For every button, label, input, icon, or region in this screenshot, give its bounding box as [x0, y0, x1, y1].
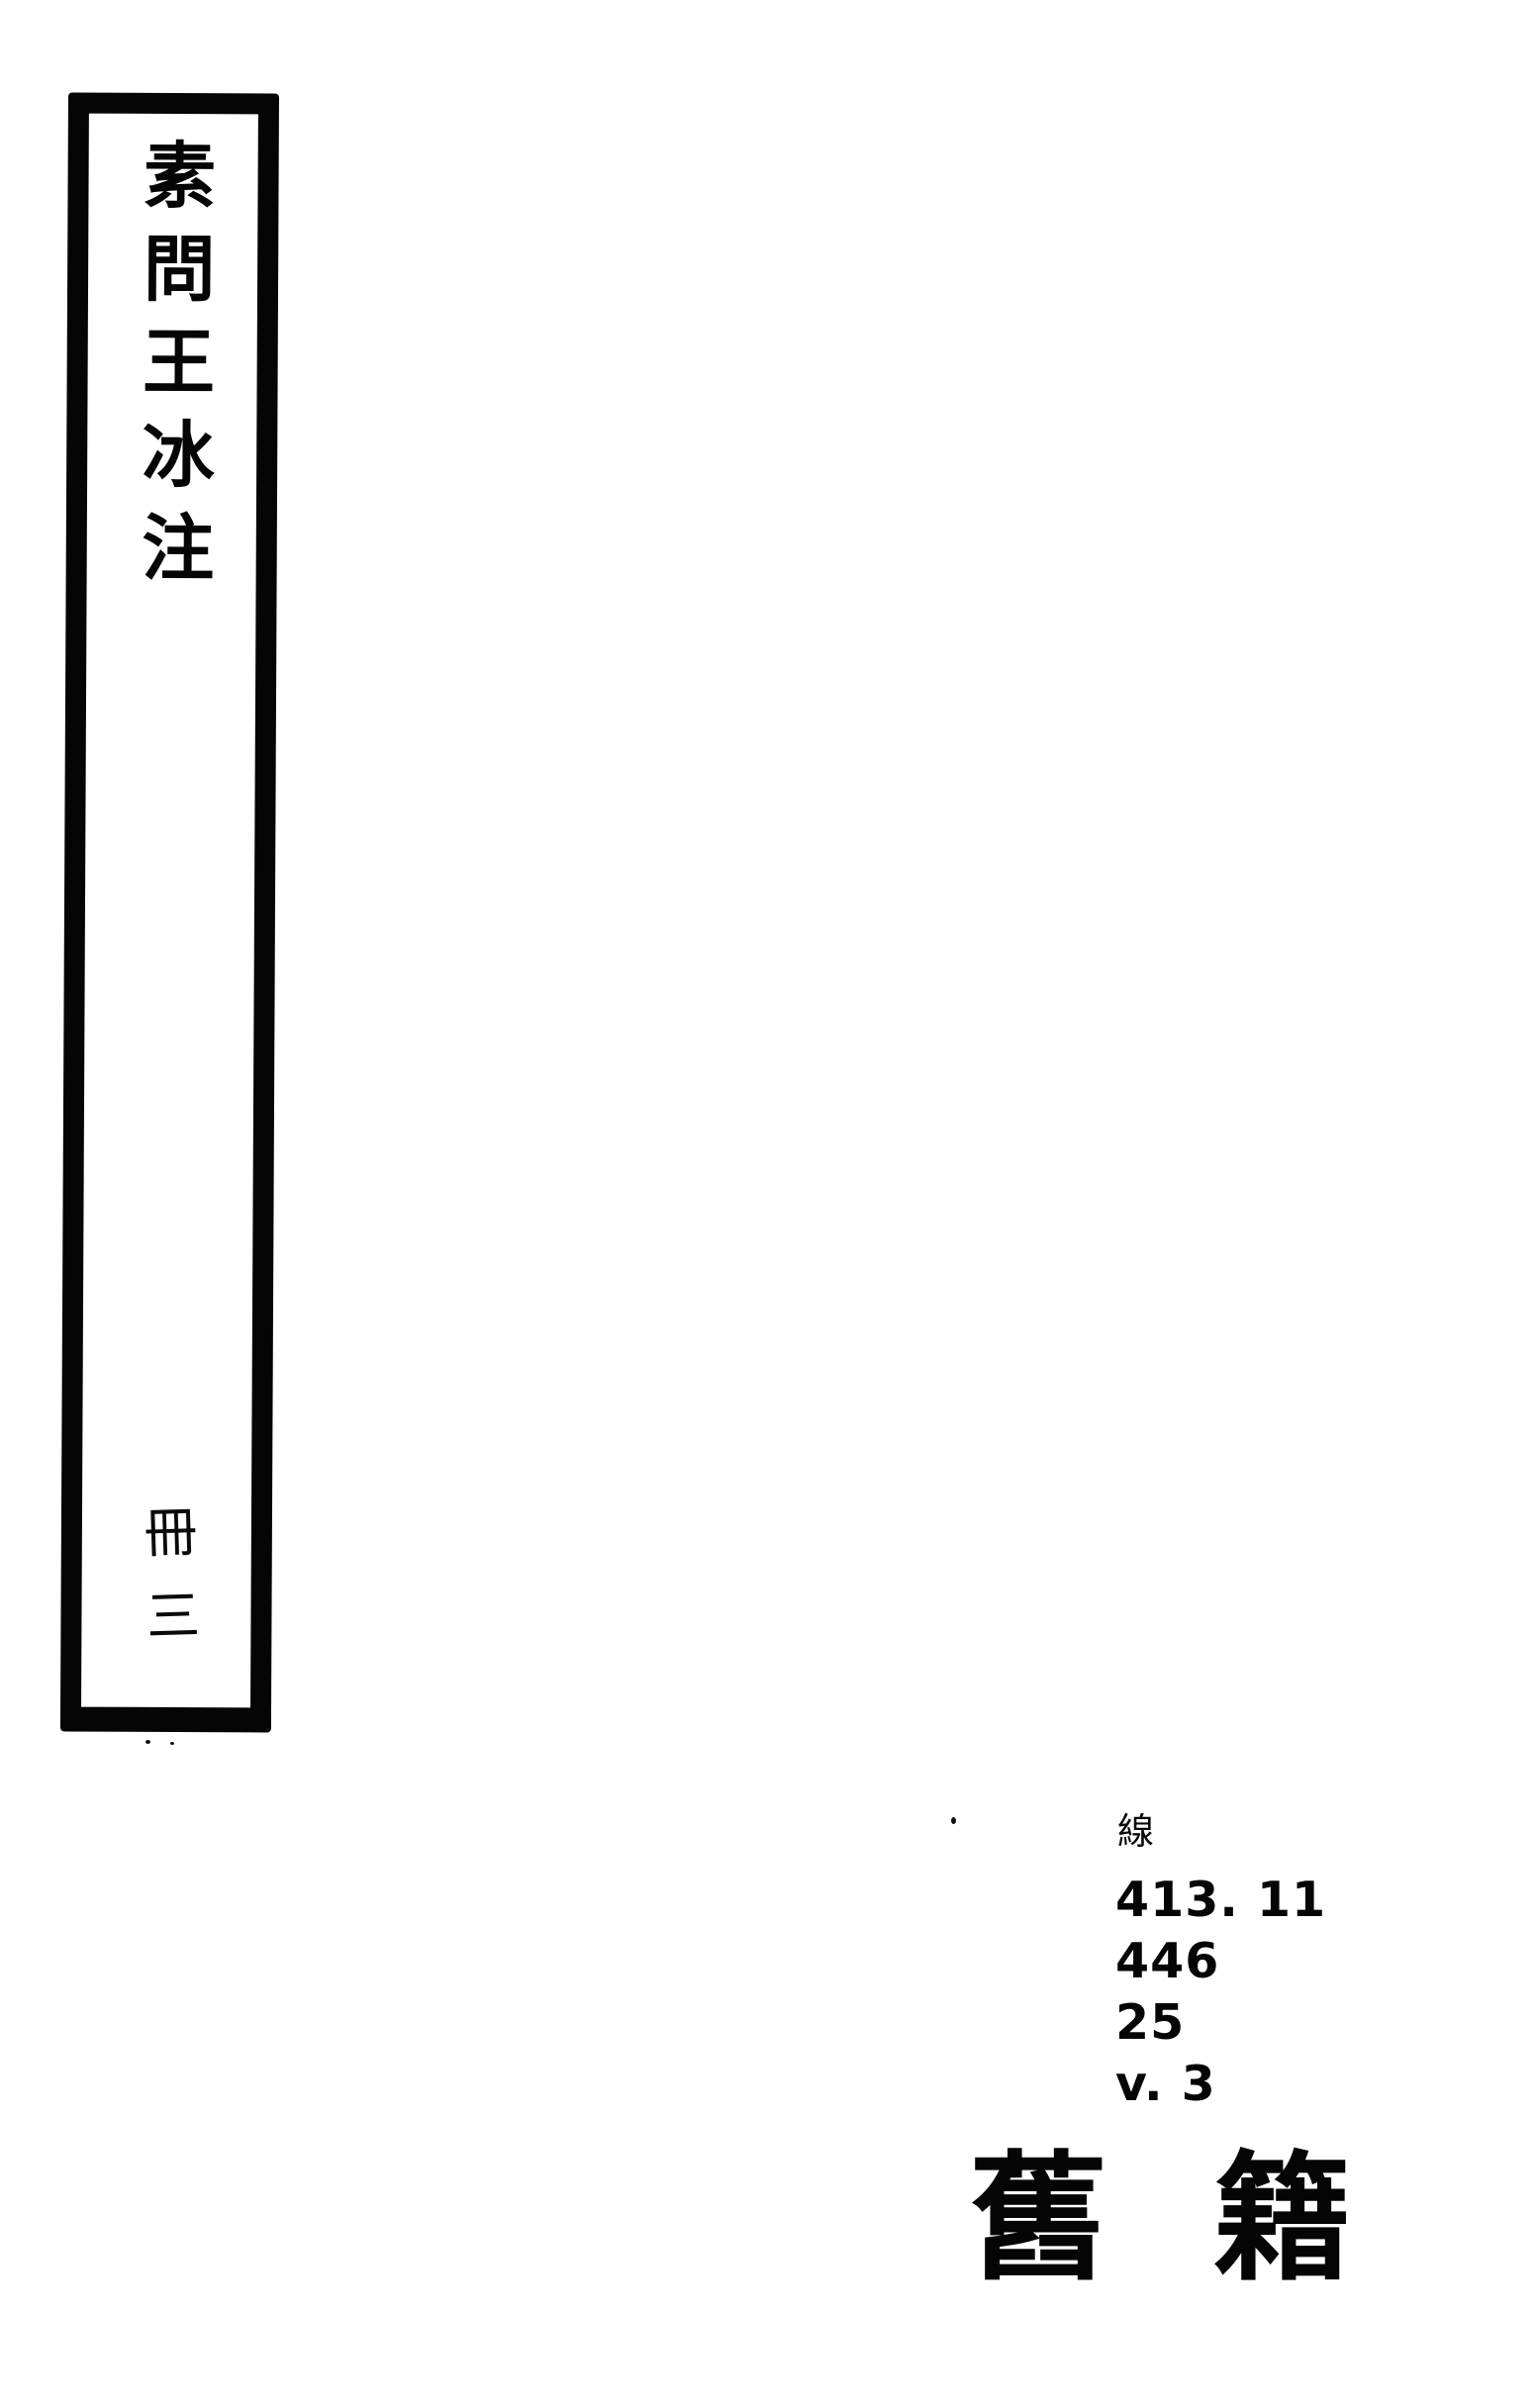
old-books-stamp: 舊 籍	[969, 2150, 1352, 2288]
call-number-line-copy: 25	[1115, 1992, 1326, 2054]
spine-label-box: 素問王冰注 冊三	[60, 92, 279, 1732]
call-number-line-volume: v. 3	[1115, 2054, 1326, 2115]
old-books-stamp-char-2: 籍	[1213, 2150, 1352, 2288]
call-number-lines: 413. 11 446 25 v. 3	[1115, 1870, 1326, 2115]
spine-volume-vertical: 冊三	[138, 1503, 196, 1672]
call-number-line-classification: 413. 11	[1115, 1870, 1326, 1931]
scan-speck	[145, 1740, 150, 1744]
scanned-book-label-page: 素問王冰注 冊三 線 413. 11 446 25 v. 3 舊 籍	[0, 0, 1538, 2408]
spine-title-vertical: 素問王冰注	[135, 138, 209, 603]
call-number-format-char: 線	[1117, 1813, 1326, 1850]
scan-speck	[170, 1742, 174, 1745]
call-number-line-book: 446	[1115, 1931, 1326, 1992]
call-number-block: 線 413. 11 446 25 v. 3	[1115, 1813, 1326, 2115]
old-books-stamp-char-1: 舊	[969, 2150, 1107, 2288]
scan-speck	[951, 1817, 956, 1824]
